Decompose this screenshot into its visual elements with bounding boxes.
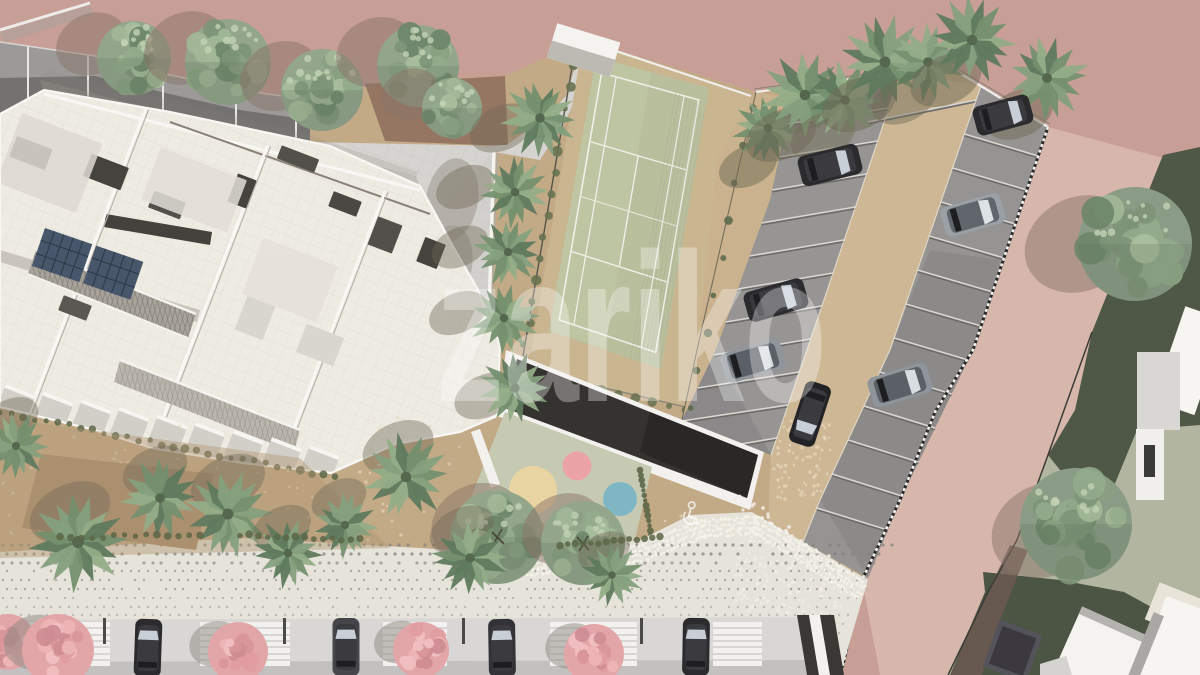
svg-text:zariko: zariko — [436, 209, 827, 446]
